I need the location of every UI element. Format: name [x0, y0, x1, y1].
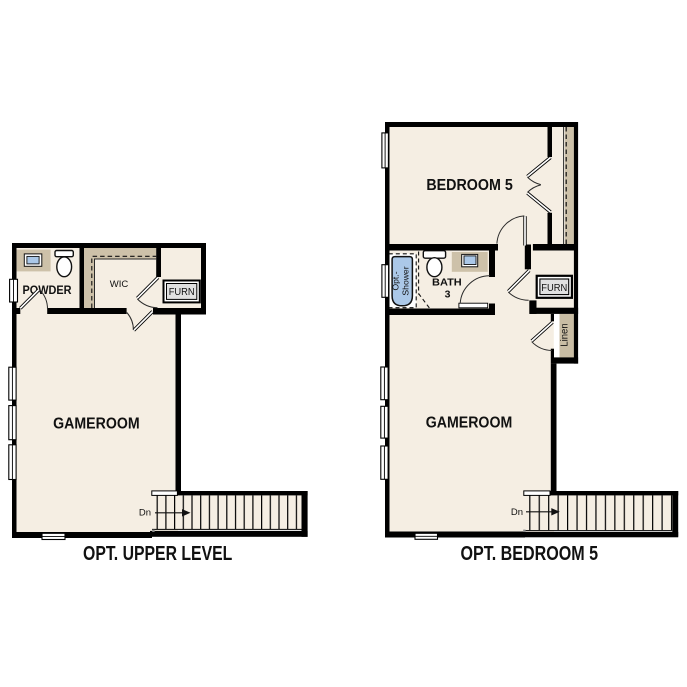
svg-text:FURN: FURN: [541, 283, 567, 294]
svg-text:Opt.-: Opt.-: [391, 271, 401, 290]
svg-text:BATH: BATH: [432, 276, 462, 288]
svg-text:POWDER: POWDER: [23, 283, 72, 297]
svg-text:Linen: Linen: [560, 323, 571, 346]
svg-text:WIC: WIC: [110, 279, 129, 290]
svg-text:Shower: Shower: [401, 266, 411, 295]
svg-text:GAMEROOM: GAMEROOM: [53, 416, 140, 433]
svg-text:OPT. UPPER LEVEL: OPT. UPPER LEVEL: [83, 543, 232, 565]
svg-text:OPT. BEDROOM 5: OPT. BEDROOM 5: [460, 543, 598, 565]
svg-text:Dn: Dn: [139, 508, 151, 519]
svg-text:Dn: Dn: [511, 507, 523, 518]
svg-text:FURN: FURN: [169, 287, 195, 298]
svg-text:3: 3: [445, 289, 451, 301]
svg-text:GAMEROOM: GAMEROOM: [426, 415, 513, 432]
svg-text:BEDROOM 5: BEDROOM 5: [426, 177, 513, 194]
